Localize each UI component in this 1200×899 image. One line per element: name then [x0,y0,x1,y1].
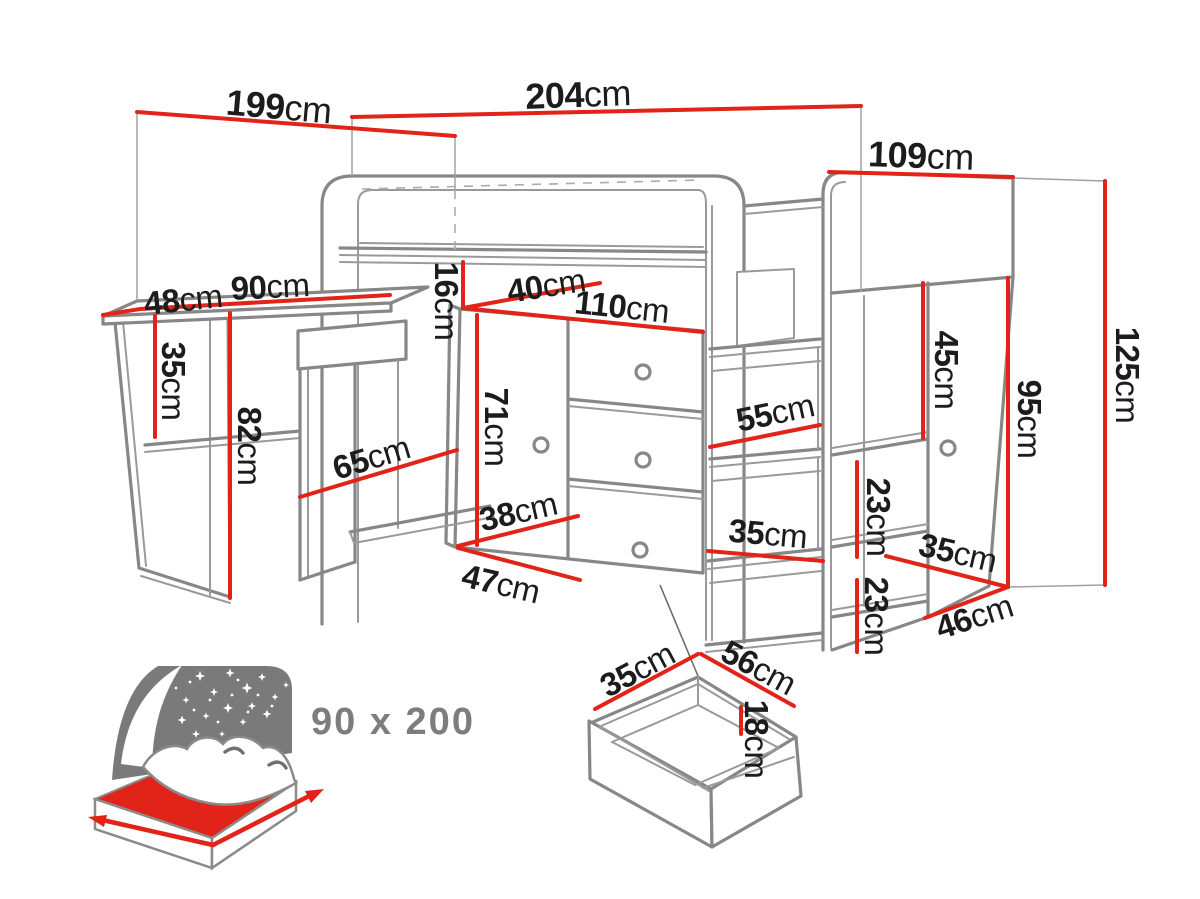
drawer-handle-1 [636,365,650,379]
dim-label-35-desk: 35cm [156,342,193,421]
dim-label-109: 109cm [868,133,975,178]
furniture-dimension-diagram: 199cm 204cm 109cm 48cm 90cm 35cm 82cm 65… [0,0,1200,899]
drawer-handle-3 [633,543,647,557]
dim-label-199: 199cm [225,81,334,131]
dim-label-35-drawer: 35cm [594,634,681,704]
cabinet [446,305,703,676]
dim-label-204: 204cm [525,72,632,117]
dim-label-90: 90cm [230,265,311,306]
dim-label-23-upper: 23cm [861,478,898,557]
wardrobe-door-handle [941,441,955,455]
headboard-wardrobe [823,172,1013,650]
dim-label-47: 47cm [458,556,543,610]
dim-label-125: 125cm [1110,327,1147,424]
dim-label-45: 45cm [929,331,966,410]
dim-label-23-lower: 23cm [859,577,896,656]
dim-label-95: 95cm [1012,380,1049,459]
bed-size-icon: 90 x 200 [88,665,475,868]
drawer-handle-2 [636,453,650,467]
dim-label-16: 16cm [429,262,466,341]
bed-size-label: 90 x 200 [311,701,475,743]
dim-label-18: 18cm [739,700,776,779]
cabinet-door-handle [534,438,548,452]
dim-label-71: 71cm [479,388,516,467]
dim-label-35-ladder: 35cm [727,511,809,555]
diagram-canvas: 199cm 204cm 109cm 48cm 90cm 35cm 82cm 65… [0,0,1200,899]
dim-label-82: 82cm [232,407,269,486]
